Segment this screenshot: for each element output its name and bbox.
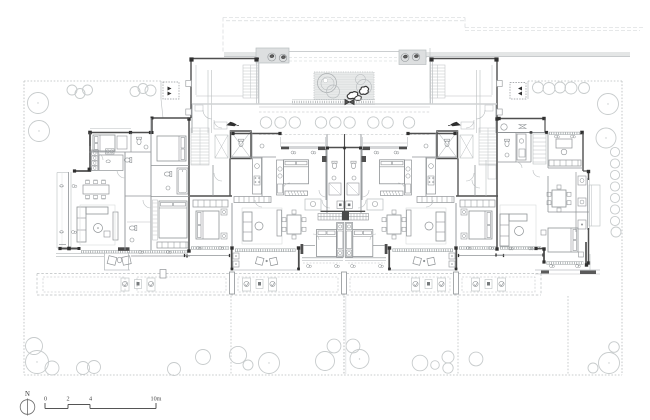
svg-text:2: 2	[66, 396, 69, 403]
svg-text:10m: 10m	[150, 396, 161, 403]
svg-text:4: 4	[89, 396, 92, 403]
svg-text:N: N	[25, 391, 30, 398]
svg-text:0: 0	[44, 396, 47, 403]
